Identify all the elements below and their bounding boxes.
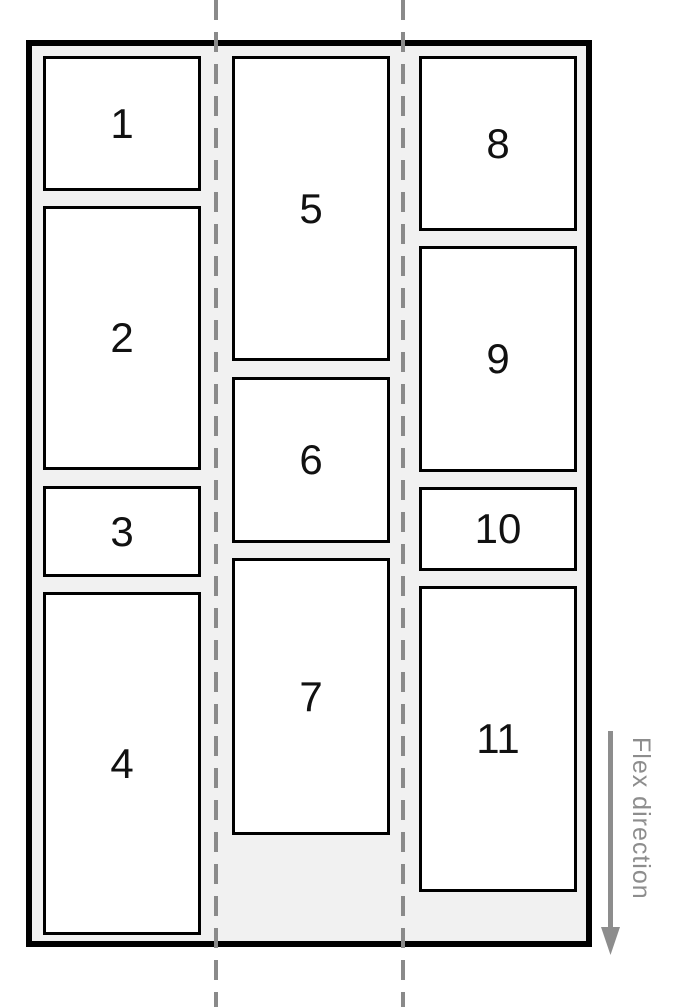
flex-item-9: 9 [419,246,577,472]
arrow-down-icon [598,728,624,958]
column-guide-line [401,0,405,1007]
flex-item-7: 7 [232,558,390,835]
flex-container: 1 2 3 4 5 6 7 8 9 10 11 [26,40,592,947]
flex-item-8: 8 [419,56,577,231]
flex-item-2: 2 [43,206,201,470]
flex-item-10: 10 [419,487,577,571]
flex-item-6: 6 [232,377,390,543]
flex-item-1: 1 [43,56,201,191]
flex-item-3: 3 [43,486,201,577]
flex-item-4: 4 [43,592,201,935]
flex-wrap-column-diagram: 1 2 3 4 5 6 7 8 9 10 11 Flex direction [0,0,674,1007]
flex-item-11: 11 [419,586,577,892]
flex-item-5: 5 [232,56,390,361]
flex-direction-label: Flex direction [626,737,655,900]
column-guide-line [214,0,218,1007]
